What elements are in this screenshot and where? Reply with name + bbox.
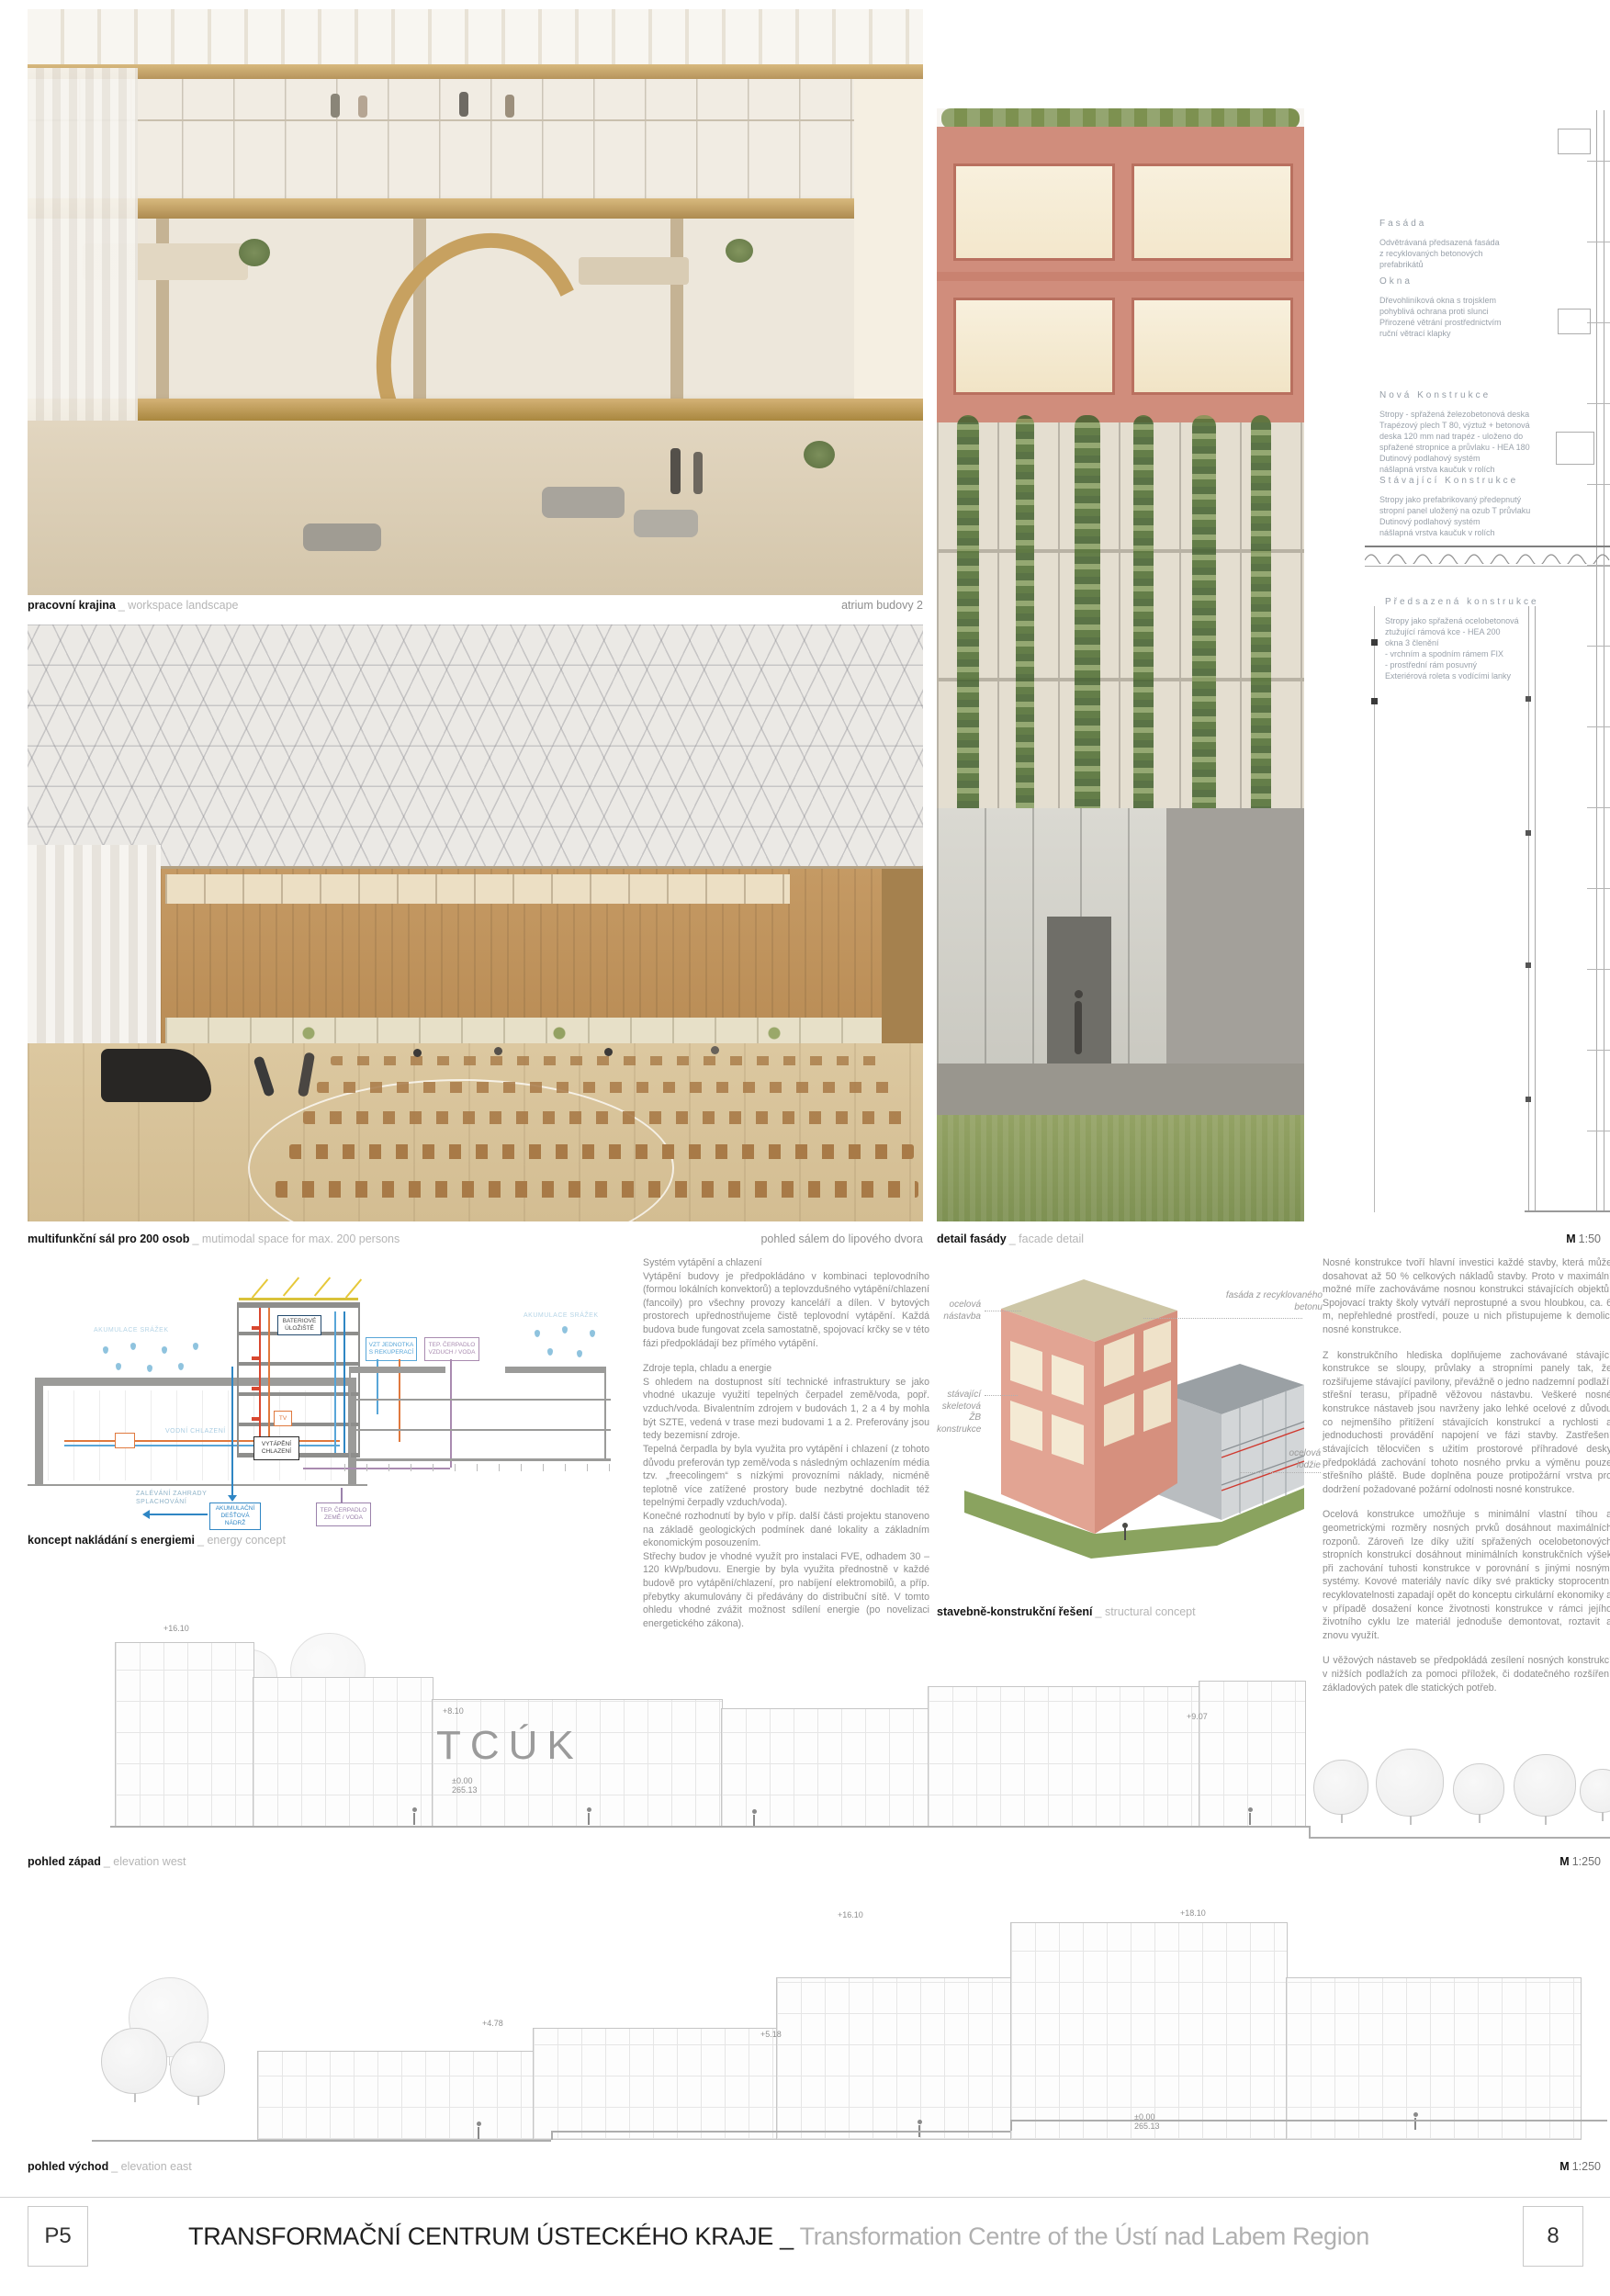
raindrop	[162, 1346, 167, 1354]
hvac-paragraph: Zdroje tepla, chladu a energie S ohledem…	[643, 1362, 929, 1630]
caption-west-cs: pohled západ	[28, 1855, 101, 1868]
tree	[1580, 1769, 1610, 1813]
caption-facade-en: _ facade detail	[1009, 1232, 1084, 1245]
elevation-west: TCÚK +16.10 +8.10 +9.07 ±0.00 265.13	[110, 1624, 1607, 1849]
caption-structure: stavebně-konstrukční řešení_ structural …	[937, 1605, 1196, 1618]
audience-row	[276, 1181, 918, 1198]
elevation-east: +16.10 +18.10 +4.78 +5.18 ±0.00 265.13	[92, 1890, 1607, 2161]
sun-ray	[283, 1277, 299, 1296]
caption-facade: detail fasády_ facade detail	[937, 1232, 1084, 1245]
level-mark: +8.10	[443, 1706, 464, 1716]
raindrop	[193, 1343, 198, 1350]
structure-paragraph: Ocelová konstrukce umožňuje s minimální …	[1323, 1508, 1610, 1642]
level-mark: +16.10	[838, 1910, 863, 1919]
caption-energy-cs: koncept nakládání s energiemi	[28, 1534, 195, 1547]
sun-ray	[314, 1277, 331, 1296]
elevation-building	[533, 2028, 778, 2140]
caption-energy: koncept nakládání s energiemi_ energy co…	[28, 1534, 286, 1547]
elevation-building	[1286, 1977, 1582, 2140]
level-mark: +18.10	[1180, 1908, 1206, 1918]
caption-east: pohled východ_ elevation east	[28, 2160, 192, 2173]
caption-east-cs: pohled východ	[28, 2160, 108, 2173]
tcuk-signage: TCÚK	[436, 1723, 583, 1769]
energy-concept-diagram: AKUMULACE SRÁŽEK VODNÍ CHLAZENÍ	[28, 1275, 634, 1530]
rain-tank-box: AKUMULAČNÍ DEŠŤOVÁ NÁDRŽ	[209, 1503, 261, 1530]
structural-axonometry: ocelová nástavba fasáda z recyklovaného …	[937, 1254, 1323, 1607]
space-frame-truss	[28, 625, 923, 868]
sun-ray	[252, 1278, 268, 1298]
elevation-building	[776, 1977, 1012, 2140]
raindrop	[562, 1326, 568, 1334]
axo-label-fasada: fasáda z recyklovaného betonu	[1208, 1290, 1323, 1313]
raindrop	[577, 1350, 582, 1357]
glazed-mid-band	[937, 422, 1304, 808]
person-figure	[588, 1813, 590, 1825]
tree	[170, 2042, 225, 2097]
corrugated-deck-detail	[1365, 549, 1610, 564]
caption-east-en: _ elevation east	[111, 2160, 192, 2173]
scale-facade: M1:50	[1566, 1232, 1601, 1245]
structure-paragraph: Z konstrukčního hlediska doplňujeme zach…	[1323, 1349, 1610, 1497]
tower-section	[237, 1302, 360, 1308]
sun-ray	[345, 1278, 362, 1298]
elevation-building	[115, 1642, 254, 1828]
elevation-building	[1199, 1681, 1306, 1828]
tree	[1453, 1763, 1504, 1815]
caption-west: pohled západ_ elevation west	[28, 1855, 186, 1868]
tree	[1514, 1754, 1576, 1817]
wall-section-drawing	[1359, 108, 1610, 1221]
tv-box: TV	[274, 1411, 292, 1426]
caption-facade-cs: detail fasády	[937, 1232, 1007, 1245]
curtain	[28, 68, 138, 421]
ahu-box: VZT JEDNOTKA S REKUPERACÍ	[366, 1337, 417, 1361]
caption-hall-cs: multifunkční sál pro 200 osob	[28, 1232, 189, 1245]
caption-hall: multifunkční sál pro 200 osob_ mutimodal…	[28, 1232, 400, 1245]
air-heat-pump-box: TEP. ČERPADLO VZDUCH / VODA	[424, 1337, 479, 1361]
caption-atrium-right: atrium budovy 2	[841, 599, 923, 612]
raindrop	[130, 1343, 136, 1350]
raindrop	[103, 1346, 108, 1354]
caption-energy-en: _ energy concept	[197, 1534, 286, 1547]
raindrop	[147, 1365, 152, 1372]
axo-label-stavajici: stávající skeletová ŽB konstrukce	[937, 1390, 981, 1435]
audience-row	[289, 1144, 914, 1159]
elevation-building	[1010, 1922, 1288, 2140]
heating-cooling-box: VYTÁPĚNÍ CHLAZENÍ	[253, 1436, 299, 1460]
audience-row	[303, 1111, 905, 1124]
raindrop	[116, 1363, 121, 1370]
level-mark: +5.18	[760, 2030, 782, 2039]
axo-label-lodzie: ocelová lodžie	[1275, 1448, 1321, 1471]
label-rain-accumulation: AKUMULACE SRÁŽEK	[94, 1326, 169, 1334]
label-garden-irrigation: ZALÉVÁNÍ ZAHRADY SPLACHOVÁNÍ	[136, 1490, 207, 1506]
label-water-cooling: VODNÍ CHLAZENÍ	[165, 1427, 226, 1435]
scale-west: M1:250	[1559, 1855, 1601, 1868]
ground-heat-pump-box: TEP. ČERPADLO ZEMĚ / VODA	[316, 1503, 371, 1526]
grand-piano	[101, 1049, 211, 1102]
render-multifunctional-hall	[28, 625, 923, 1221]
raindrop	[547, 1348, 553, 1356]
audience-row	[331, 1056, 882, 1065]
raindrop	[590, 1330, 595, 1337]
roof-planting	[941, 108, 1300, 129]
elevation-building	[928, 1686, 1200, 1828]
axo-label-nastavba: ocelová nástavba	[937, 1300, 981, 1322]
footer-divider	[0, 2197, 1610, 2198]
low-building-section	[349, 1367, 445, 1373]
tree	[101, 2028, 167, 2094]
person-figure	[413, 1813, 415, 1825]
hvac-text: Systém vytápění a chlazení Vytápění budo…	[643, 1256, 929, 1642]
project-title-cs: TRANSFORMAČNÍ CENTRUM ÚSTECKÉHO KRAJE _	[188, 2223, 794, 2250]
competition-board: pracovní krajina_ workspace landscape at…	[0, 0, 1610, 2296]
person-figure	[1249, 1813, 1251, 1825]
grass	[937, 1115, 1304, 1221]
level-mark: ±0.00 265.13	[1134, 2112, 1160, 2132]
project-title-en: Transformation Centre of the Ústí nad La…	[800, 2223, 1369, 2250]
arrow-left	[138, 1510, 150, 1519]
raindrop	[535, 1330, 540, 1337]
caption-hall-en: _ mutimodal space for max. 200 persons	[192, 1232, 400, 1245]
battery-storage-box: BATERIOVÉ ÚLOŽIŠTĚ	[277, 1315, 321, 1335]
hall-section	[35, 1378, 356, 1386]
elevation-building	[257, 2051, 535, 2140]
person-silhouette	[1075, 1001, 1082, 1054]
structure-paragraph: Nosné konstrukce tvoří hlavní investici …	[1323, 1256, 1610, 1337]
hvac-paragraph: Systém vytápění a chlazení Vytápění budo…	[643, 1256, 929, 1350]
audience-row	[317, 1082, 895, 1093]
project-title: TRANSFORMAČNÍ CENTRUM ÚSTECKÉHO KRAJE _ …	[188, 2223, 1369, 2251]
person-figure	[478, 2127, 479, 2139]
tree	[1376, 1749, 1444, 1817]
level-mark: +9.07	[1187, 1712, 1208, 1721]
caption-structure-cs: stavebně-konstrukční řešení	[937, 1605, 1093, 1618]
tree	[1313, 1760, 1368, 1815]
caption-hall-right: pohled sálem do lipového dvora	[760, 1232, 923, 1245]
level-mark: +4.78	[482, 2019, 503, 2028]
render-atrium-workspace	[28, 9, 923, 595]
panel-code-box: P5	[28, 2206, 88, 2267]
page-number-box: 8	[1523, 2206, 1583, 2267]
elevation-building	[253, 1677, 433, 1828]
caption-west-en: _ elevation west	[104, 1855, 186, 1868]
level-mark: +16.10	[163, 1624, 189, 1633]
caption-workspace-cs: pracovní krajina	[28, 599, 116, 612]
caption-workspace-en: _ workspace landscape	[118, 599, 239, 612]
scale-east: M1:250	[1559, 2160, 1601, 2173]
caption-workspace: pracovní krajina_ workspace landscape	[28, 599, 239, 612]
render-facade-detail	[937, 108, 1304, 1221]
raindrop	[178, 1363, 184, 1370]
level-mark: ±0.00 265.13	[452, 1776, 478, 1795]
caption-structure-en: _ structural concept	[1096, 1605, 1196, 1618]
label-rain-accumulation-2: AKUMULACE SRÁŽEK	[524, 1311, 599, 1320]
